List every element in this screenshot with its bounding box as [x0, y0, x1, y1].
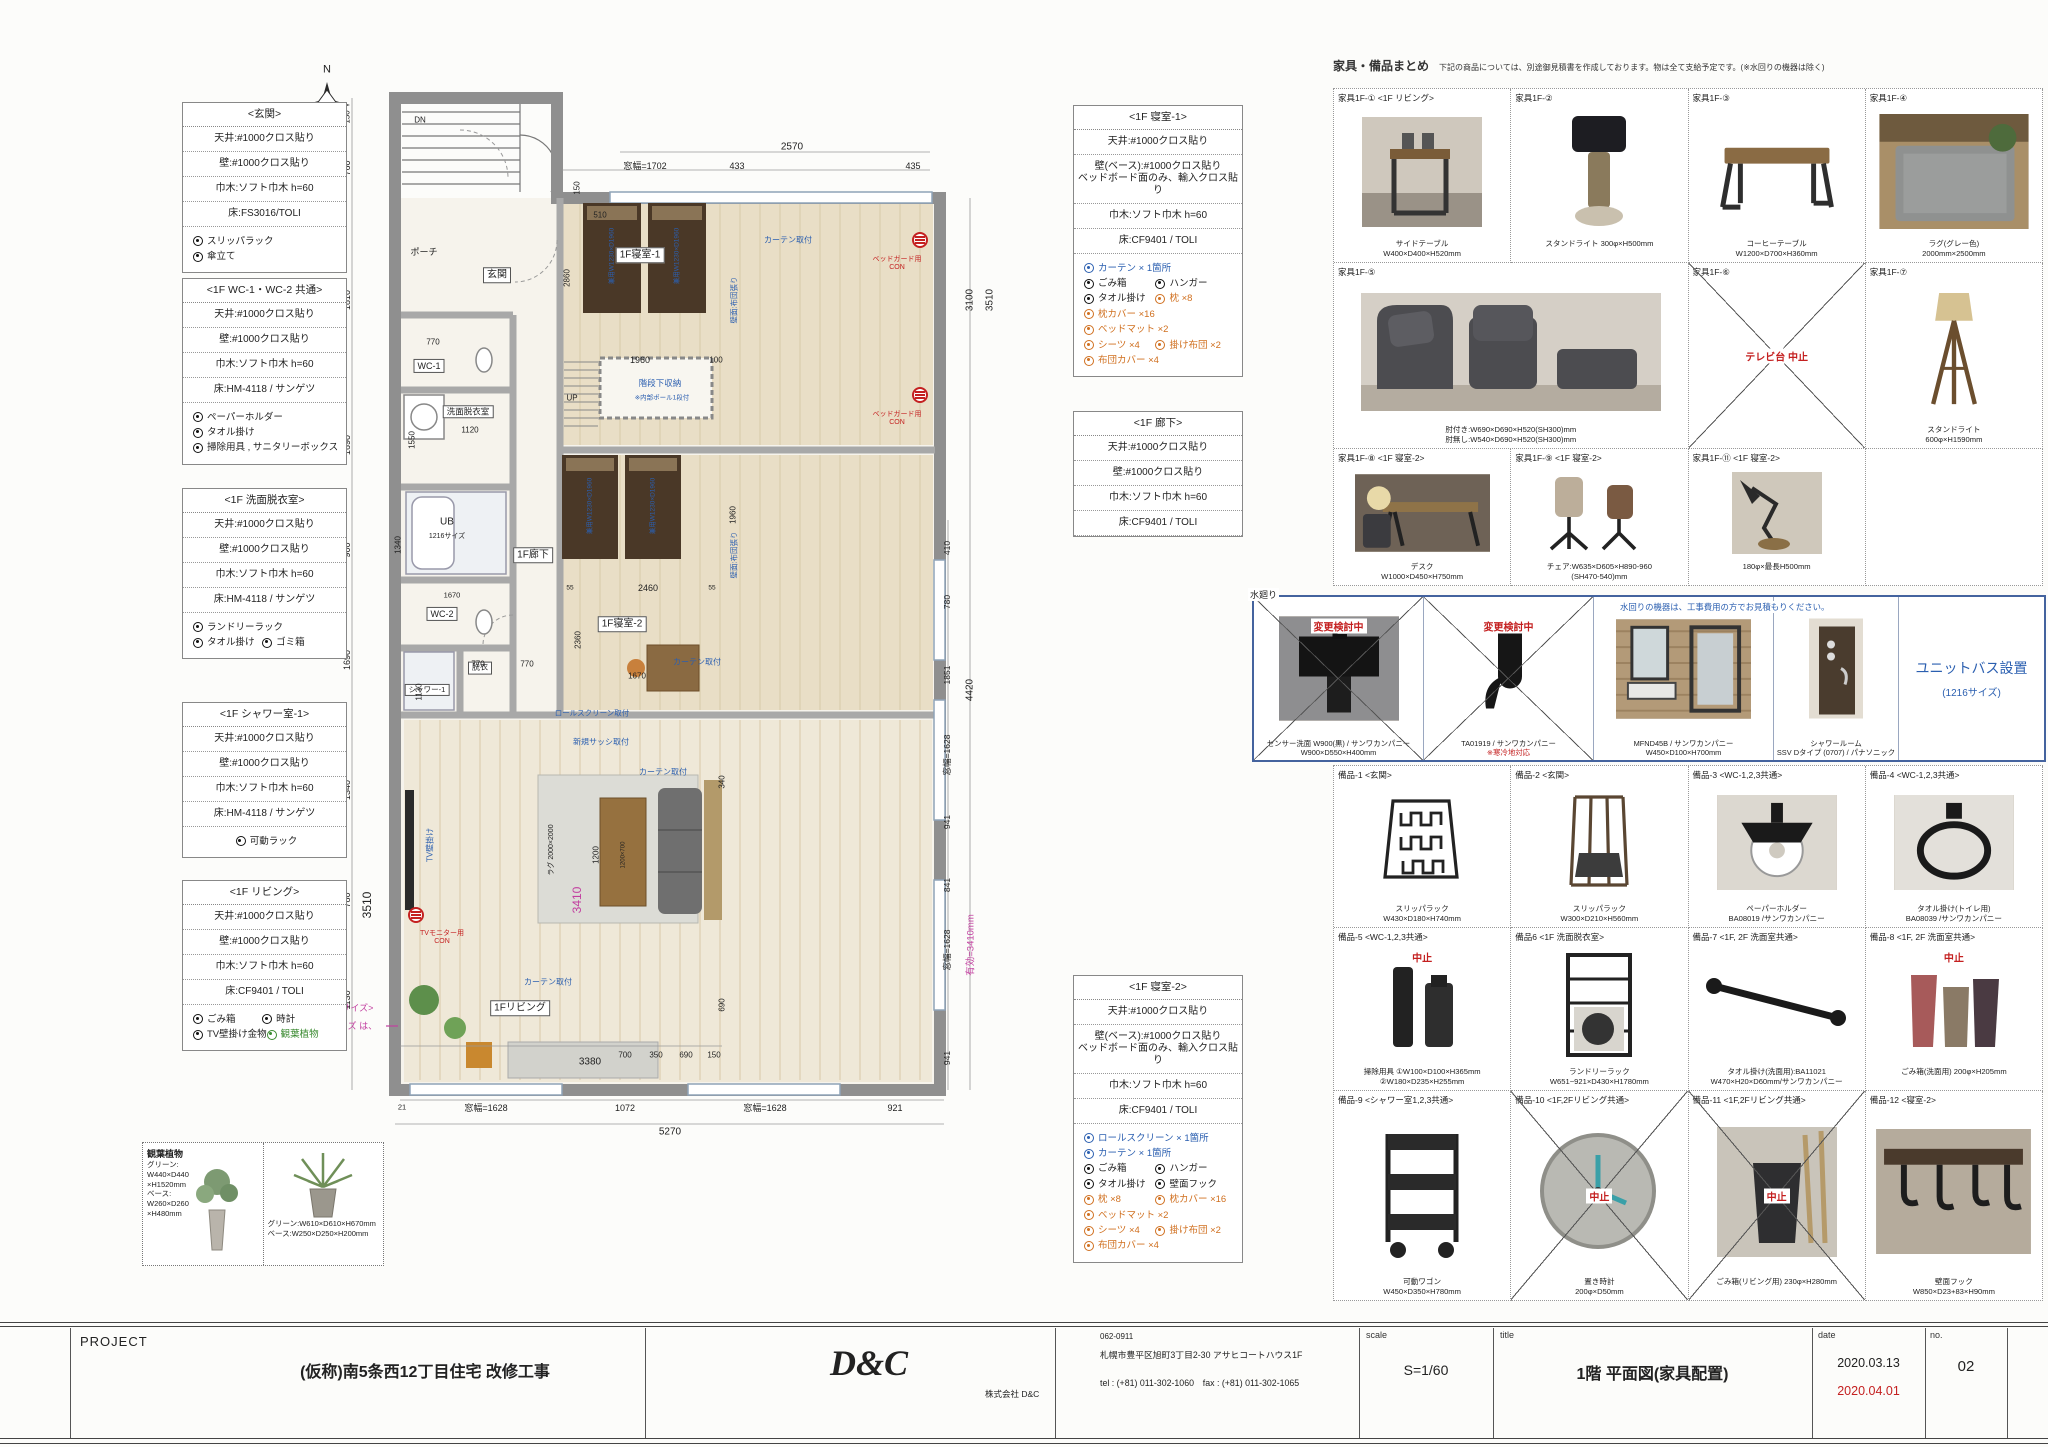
spec-check-item: 布団カバー ×4: [1084, 1238, 1159, 1253]
waste-bins-photo: [1899, 955, 2009, 1055]
spec-row: 壁:#1000クロス貼り: [183, 152, 346, 177]
catalog-cell-f6: 家具1F-⑥ テレビ台 中止: [1689, 263, 1866, 449]
spec-check-item: 傘立て: [193, 249, 262, 264]
bullet-icon: [1084, 1164, 1094, 1174]
bullet-icon: [193, 236, 203, 246]
table-lamp-photo: [1564, 112, 1634, 232]
spec-check-item: 布団カバー ×4: [1084, 353, 1159, 368]
rug-photo: [1879, 114, 2029, 229]
spec-row: 床:HM-4118 / サンゲツ: [183, 378, 346, 403]
review-badge: 変更検討中: [1481, 619, 1537, 634]
spec-row: 壁:#1000クロス貼り: [1074, 461, 1242, 486]
floor-lamp-photo: [1921, 289, 1987, 414]
spec-row: 床:HM-4118 / サンゲツ: [183, 588, 346, 613]
company-address: 札幌市豊平区旭町3丁目2-30 アサヒコートハウス1F: [1100, 1348, 1302, 1361]
plants-box: 観葉植物 グリーン: W440×D440 ×H1520mm ベース: W260×…: [142, 1142, 384, 1266]
spec-row: 天井:#1000クロス貼り: [183, 513, 346, 538]
titleblock-rule: [0, 1326, 2048, 1327]
plant-icon: [288, 1147, 358, 1219]
laundry-rack-photo: [1560, 951, 1638, 1059]
spec-title: <1F 寝室-1>: [1074, 106, 1242, 130]
bullet-icon: [1155, 294, 1165, 304]
spec-row: 床:CF9401 / TOLI: [1074, 511, 1242, 536]
catalog-header: 家具・備品まとめ下記の商品については、別途御見積書を作成しております。物は全て支…: [1333, 57, 1825, 74]
chair-photo: [1539, 473, 1659, 553]
plumbing-cell-mirror: MFND45B / サンワカンパニーW450×D100×H700mm: [1594, 597, 1774, 760]
spec-box-bedroom2: <1F 寝室-2> 天井:#1000クロス貼り壁(ベース):#1000クロス貼り…: [1073, 975, 1243, 1263]
plumbing-note: 水回りの機器は、工事費用の方でお見積もりください。: [1618, 601, 1831, 613]
catalog-cell-a6: 備品6 <1F 洗面脱衣室> ランドリーラックW651~921×D430×H17…: [1511, 928, 1688, 1091]
spec-row: 巾木:ソフト巾木 h=60: [183, 563, 346, 588]
bullet-icon: [193, 428, 203, 438]
bullet-icon: [193, 622, 203, 632]
spec-row: 巾木:ソフト巾木 h=60: [1074, 1074, 1242, 1099]
spec-box-wc: <1F WC-1・WC-2 共通> 天井:#1000クロス貼り壁:#1000クロ…: [182, 278, 347, 465]
company-name: 株式会社 D&C: [985, 1388, 1039, 1400]
spec-row: 天井:#1000クロス貼り: [1074, 130, 1242, 155]
bullet-icon: [1084, 1210, 1094, 1220]
bullet-icon: [1084, 356, 1094, 366]
title-label: title: [1500, 1330, 1514, 1340]
accessories-grid: 備品-1 <玄関> スリッパラックW430×D180×H740mm 備品-2 <…: [1333, 765, 2043, 1301]
titleblock-rule: [0, 1443, 2048, 1444]
spec-check-item: ロールスクリーン × 1箇所: [1084, 1131, 1209, 1146]
catalog-cell-f7: 家具1F-⑦ スタンドライト600φ×H1590mm: [1866, 263, 2043, 449]
plant-size: グリーン: W440×D440 ×H1520mm ベース: W260×D260 …: [147, 1160, 189, 1252]
spec-check-item: ごみ箱: [1084, 1161, 1155, 1176]
bullet-icon: [193, 412, 203, 422]
spec-row: 床:CF9401 / TOLI: [183, 980, 346, 1005]
scale-value: S=1/60: [1359, 1362, 1493, 1378]
bullet-icon: [1084, 1149, 1094, 1159]
catalog-cell-a2: 備品-2 <玄関> スリッパラックW300×D210×H560mm: [1511, 766, 1688, 928]
company-logo: D&C: [830, 1342, 908, 1384]
bullet-icon: [262, 638, 272, 648]
catalog-cell-a8: 備品-8 <1F, 2F 洗面室共通> ごみ箱(洗面用) 200φ×H205mm…: [1866, 928, 2043, 1091]
utility-wagon-photo: [1372, 1122, 1472, 1262]
catalog-cell-a5: 備品-5 <WC-1,2,3共通> 掃除用具 ①W100×D100×H365mm…: [1334, 928, 1511, 1091]
spec-row: 壁:#1000クロス貼り: [183, 752, 346, 777]
bullet-icon: [1084, 340, 1094, 350]
number-label: no.: [1930, 1330, 1943, 1340]
spec-check-item: スリッパラック: [193, 234, 274, 249]
bullet-icon: [1155, 1226, 1165, 1236]
spec-row: 壁(ベース):#1000クロス貼り ベッドボード面のみ、輸入クロス貼り: [1074, 155, 1242, 204]
spec-check-item: 時計: [262, 1012, 331, 1027]
plumbing-cell-faucet: TA01919 / サンワカンパニー※寒冷地対応 変更検討中: [1424, 597, 1594, 760]
bullet-icon: [1084, 1195, 1094, 1205]
spec-box-living: <1F リビング> 天井:#1000クロス貼り壁:#1000クロス貼り巾木:ソフ…: [182, 880, 347, 1051]
slipper-rack-photo: [1377, 793, 1467, 893]
spec-check-item: ペーパーホルダー: [193, 410, 283, 425]
spec-row: 巾木:ソフト巾木 h=60: [183, 353, 346, 378]
bullet-icon: [262, 1014, 272, 1024]
spec-check-item: 枕 ×8: [1084, 1192, 1155, 1207]
plants-title: 観葉植物: [147, 1147, 259, 1160]
spec-title: <1F リビング>: [183, 881, 346, 905]
spec-check-item: ハンガー: [1155, 276, 1226, 291]
catalog-cell-a10: 備品-10 <1F,2Fリビング共通> 置き時計200φ×D50mm 中止: [1511, 1091, 1688, 1301]
cancel-label: 中止: [1764, 1188, 1790, 1203]
spec-row: 天井:#1000クロス貼り: [183, 303, 346, 328]
bullet-icon: [1084, 1241, 1094, 1251]
spec-box-entrance: <玄関> 天井:#1000クロス貼り壁:#1000クロス貼り巾木:ソフト巾木 h…: [182, 102, 347, 273]
bullet-icon: [1084, 263, 1094, 273]
spec-check-item: 可動ラック: [236, 834, 298, 849]
desk-photo: [1355, 474, 1490, 552]
date-value-1: 2020.03.13: [1812, 1356, 1925, 1370]
spec-row: 巾木:ソフト巾木 h=60: [183, 955, 346, 980]
bullet-icon: [1084, 325, 1094, 335]
catalog-cell-a7: 備品-7 <1F, 2F 洗面室共通> タオル掛け(洗面用):BA11021W4…: [1689, 928, 1866, 1091]
catalog-cell-empty: [1866, 449, 2043, 586]
catalog-cell-f2: 家具1F-② スタンドライト 300φ×H500mm: [1511, 89, 1688, 263]
project-label: PROJECT: [80, 1334, 148, 1349]
cancel-label: 中止: [1941, 950, 1967, 965]
bullet-icon: [193, 638, 203, 648]
spec-check-item: 壁面フック: [1155, 1177, 1226, 1192]
spec-box-hallway: <1F 廊下> 天井:#1000クロス貼り壁:#1000クロス貼り巾木:ソフト巾…: [1073, 411, 1243, 537]
date-value-2: 2020.04.01: [1812, 1384, 1925, 1398]
spec-check-item: 観葉植物: [267, 1027, 336, 1042]
spec-row: 巾木:ソフト巾木 h=60: [1074, 486, 1242, 511]
sheet-title: 1階 平面図(家具配置): [1493, 1360, 1812, 1384]
bullet-icon: [1084, 1133, 1094, 1143]
catalog-cell-f4: 家具1F-④ ラグ(グレー色)2000mm×2500mm: [1866, 89, 2043, 263]
spec-title: <玄関>: [183, 103, 346, 127]
catalog-cell-f11: 家具1F-⑪ <1F 寝室-2> 180φ×最長H500mm: [1689, 449, 1866, 586]
spec-row: 天井:#1000クロス貼り: [183, 127, 346, 152]
spec-check-item: タオル掛け: [1084, 1177, 1155, 1192]
catalog-title: 家具・備品まとめ: [1333, 59, 1429, 73]
spec-check-item: タオル掛け: [193, 635, 262, 650]
plumbing-label: 水廻り: [1248, 588, 1279, 601]
spec-row: 壁(ベース):#1000クロス貼り ベッドボード面のみ、輸入クロス貼り: [1074, 1025, 1242, 1074]
catalog-cell-a9: 備品-9 <シャワー室1,2,3共通> 可動ワゴンW450×D350×H780m…: [1334, 1091, 1511, 1301]
spec-title: <1F 寝室-2>: [1074, 976, 1242, 1000]
catalog-cell-a4: 備品-4 <WC-1,2,3共通> タオル掛け(トイレ用)BA08039 /サン…: [1866, 766, 2043, 928]
spec-row: 壁:#1000クロス貼り: [183, 930, 346, 955]
spec-check-item: 掛け布団 ×2: [1155, 338, 1226, 353]
spec-row: 床:HM-4118 / サンゲツ: [183, 802, 346, 827]
plant-item: グリーン:W610×D610×H670mm ベース:W250×D250×H200…: [263, 1143, 384, 1265]
drawing-sheet: NポーチDN玄関WC-1洗面脱衣室UB1216サイズ1F廊下WC-2脱衣シャワー…: [0, 0, 2048, 1447]
wall-hooks-photo: [1876, 1129, 2031, 1254]
titleblock-rule: [0, 1322, 2048, 1323]
spec-check-item: 枕カバー ×16: [1155, 1192, 1226, 1207]
coffee-table-photo: [1712, 124, 1842, 219]
spec-check-item: TV壁掛け金物: [193, 1027, 267, 1042]
plumbing-strip: センサー洗面 W900(黒) / サンワカンパニーW900×D550×H400m…: [1252, 595, 2046, 762]
spec-row: 巾木:ソフト巾木 h=60: [1074, 204, 1242, 229]
spec-check-item: タオル掛け: [1084, 291, 1155, 306]
bullet-icon: [193, 443, 203, 453]
bullet-icon: [1155, 1195, 1165, 1205]
plant-size: グリーン:W610×D610×H670mm ベース:W250×D250×H200…: [268, 1219, 380, 1239]
unit-bath-note: ユニットバス設置 (1216サイズ): [1899, 597, 2044, 760]
sheet-number: 02: [1925, 1358, 2007, 1375]
catalog-cell-f1: 家具1F-① <1F リビング> サイドテーブルW400×D400×H520mm: [1334, 89, 1511, 263]
spec-box-bedroom1: <1F 寝室-1> 天井:#1000クロス貼り壁(ベース):#1000クロス貼り…: [1073, 105, 1243, 377]
spec-check-item: タオル掛け: [193, 425, 262, 440]
review-badge: 変更検討中: [1311, 619, 1367, 634]
spec-row: 床:CF9401 / TOLI: [1074, 1099, 1242, 1124]
bullet-icon: [1155, 1179, 1165, 1189]
spec-check-item: 枕カバー ×16: [1084, 307, 1155, 322]
bullet-icon: [193, 252, 203, 262]
spec-row: 天井:#1000クロス貼り: [183, 727, 346, 752]
spec-check-item: ごみ箱: [193, 1012, 262, 1027]
bullet-icon: [1084, 1226, 1094, 1236]
cancel-label: テレビ台 中止: [1742, 348, 1811, 363]
bullet-icon: [267, 1030, 277, 1040]
spec-check-item: シーツ ×4: [1084, 1223, 1155, 1238]
spec-row: 壁:#1000クロス貼り: [183, 538, 346, 563]
spec-row: 天井:#1000クロス貼り: [1074, 1000, 1242, 1025]
bullet-icon: [1084, 309, 1094, 319]
spec-row: 天井:#1000クロス貼り: [183, 905, 346, 930]
paper-holder-photo: [1717, 795, 1837, 890]
spec-check-item: カーテン × 1箇所: [1084, 1146, 1171, 1161]
spec-check-item: シーツ ×4: [1084, 338, 1155, 353]
plumbing-cell-vanity: センサー洗面 W900(黒) / サンワカンパニーW900×D550×H400m…: [1254, 597, 1424, 760]
catalog-cell-f8: 家具1F-⑧ <1F 寝室-2> デスクW1000×D450×H750mm: [1334, 449, 1511, 586]
bullet-icon: [1155, 1164, 1165, 1174]
bullet-icon: [1084, 279, 1094, 289]
spec-check-item: ベッドマット ×2: [1084, 322, 1168, 337]
towel-bar-photo: [1702, 970, 1852, 1040]
spec-title: <1F 洗面脱衣室>: [183, 489, 346, 513]
catalog-cell-a3: 備品-3 <WC-1,2,3共通> ペーパーホルダーBA08019 /サンワカン…: [1689, 766, 1866, 928]
cleaning-tools-photo: [1377, 955, 1467, 1055]
bullet-icon: [1084, 1179, 1094, 1189]
cancel-label: 中止: [1586, 1188, 1612, 1203]
bullet-icon: [1084, 294, 1094, 304]
cancel-label: 中止: [1409, 950, 1435, 965]
spec-box-shower: <1F シャワー室-1> 天井:#1000クロス貼り壁:#1000クロス貼り巾木…: [182, 702, 347, 858]
spec-check-item: 掛け布団 ×2: [1155, 1223, 1226, 1238]
spec-check-item: 掃除用具 , サニタリーボックス: [193, 440, 338, 455]
catalog-note: 下記の商品については、別途御見積書を作成しております。物は全て支給予定です。(※…: [1439, 63, 1825, 72]
spec-row: 巾木:ソフト巾木 h=60: [183, 777, 346, 802]
spec-row: 壁:#1000クロス貼り: [183, 328, 346, 353]
towel-ring-photo: [1894, 795, 2014, 890]
postal-code: 062-0911: [1100, 1332, 1133, 1341]
titleblock-rule: [0, 1438, 2048, 1439]
spec-title: <1F シャワー室-1>: [183, 703, 346, 727]
plant-item: 観葉植物 グリーン: W440×D440 ×H1520mm ベース: W260×…: [143, 1143, 263, 1265]
plumbing-cell-shower: シャワールームSSV Dタイプ (0707) / パナソニック: [1774, 597, 1899, 760]
project-name: (仮称)南5条西12丁目住宅 改修工事: [210, 1358, 640, 1382]
spec-check-item: ランドリーラック: [193, 620, 283, 635]
bullet-icon: [193, 1030, 203, 1040]
plant-icon: [191, 1160, 243, 1252]
spec-row: 床:CF9401 / TOLI: [1074, 229, 1242, 254]
spec-title: <1F 廊下>: [1074, 412, 1242, 436]
desk-lamp-photo: [1732, 472, 1822, 554]
date-label: date: [1818, 1330, 1836, 1340]
bullet-icon: [193, 1014, 203, 1024]
spec-row: 天井:#1000クロス貼り: [1074, 436, 1242, 461]
catalog-cell-a1: 備品-1 <玄関> スリッパラックW430×D180×H740mm: [1334, 766, 1511, 928]
catalog-cell-f5: 家具1F-⑤ 肘付き:W690×D690×H520(SH300)mm肘無し:W5…: [1334, 263, 1689, 449]
spec-check-item: 枕 ×8: [1155, 291, 1226, 306]
side-table-photo: [1362, 117, 1482, 227]
spec-check-item: ハンガー: [1155, 1161, 1226, 1176]
bullet-icon: [236, 836, 246, 846]
catalog-cell-a11: 備品-11 <1F,2Fリビング共通> ごみ箱(リビング用) 230φ×H280…: [1689, 1091, 1866, 1301]
catalog-cell-a12: 備品-12 <寝室-2> 壁面フックW850×D23+83×H90mm: [1866, 1091, 2043, 1301]
spec-check-item: カーテン × 1箇所: [1084, 261, 1171, 276]
bullet-icon: [1155, 340, 1165, 350]
spec-title: <1F WC-1・WC-2 共通>: [183, 279, 346, 303]
spec-box-washroom: <1F 洗面脱衣室> 天井:#1000クロス貼り壁:#1000クロス貼り巾木:ソ…: [182, 488, 347, 659]
spec-check-item: ベッドマット ×2: [1084, 1208, 1168, 1223]
spec-check-item: ごみ箱: [1084, 276, 1155, 291]
sofa-photo: [1361, 293, 1661, 411]
spec-row: 床:FS3016/TOLI: [183, 202, 346, 227]
spec-check-item: ゴミ箱: [262, 635, 331, 650]
bullet-icon: [1155, 279, 1165, 289]
scale-label: scale: [1366, 1330, 1387, 1340]
catalog-cell-f3: 家具1F-③ コーヒーテーブルW1200×D700×H360mm: [1689, 89, 1866, 263]
furniture-grid: 家具1F-① <1F リビング> サイドテーブルW400×D400×H520mm…: [1333, 88, 2043, 586]
umbrella-stand-photo: [1559, 793, 1639, 893]
company-telfax: tel : (+81) 011-302-1060 fax : (+81) 011…: [1100, 1376, 1299, 1389]
catalog-cell-f9: 家具1F-⑨ <1F 寝室-2> チェア:W635×D605×H890-960(…: [1511, 449, 1688, 586]
spec-row: 巾木:ソフト巾木 h=60: [183, 177, 346, 202]
